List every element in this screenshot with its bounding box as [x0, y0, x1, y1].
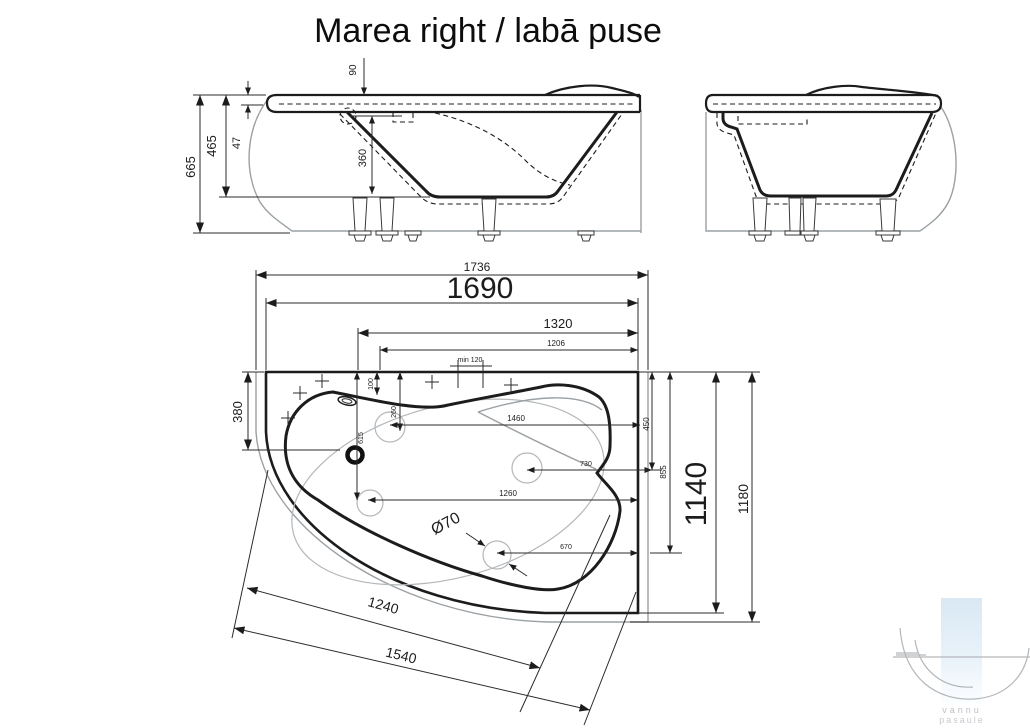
jet-circle-3	[357, 490, 383, 516]
side-skirt-outline	[249, 99, 641, 233]
side-deck-dashed-curve	[435, 113, 570, 185]
dimension-label: Ø70	[429, 509, 464, 538]
side-faucet-dashed	[393, 112, 413, 122]
dim-panel-1240: 1240	[232, 470, 636, 725]
extension-lines	[193, 95, 290, 233]
dimension-label: 47	[231, 137, 243, 149]
end-skirt-outline	[706, 107, 956, 231]
watermark-logo: vannu pasaule	[893, 598, 1030, 725]
dimension-label: 1240	[366, 593, 400, 617]
dimension-label: 855	[659, 465, 668, 479]
dimension-label: 1206	[547, 339, 565, 348]
dimension-label: 730	[580, 461, 592, 468]
plan-headrest-contour	[478, 398, 602, 469]
dim-plan-1206: 1206	[380, 339, 638, 370]
dimension-label: 380	[230, 401, 245, 423]
dimension-label: 1180	[735, 484, 751, 514]
dim-plan-450: 450	[638, 372, 760, 470]
side-interior-dashed	[340, 114, 622, 204]
dimension-line	[234, 628, 590, 710]
dim-drain-diameter: Ø70	[429, 509, 527, 576]
dim-plan-1460: 1460	[390, 414, 640, 425]
plan-basin-outline	[285, 385, 620, 590]
dimension-label: 260	[391, 406, 398, 418]
extension-lines	[638, 372, 760, 470]
dim-side-90: 90	[348, 58, 402, 116]
watermark-bar	[941, 598, 982, 704]
leader-arrow-2	[509, 564, 527, 576]
dimension-label: 615	[358, 432, 365, 444]
dimension-label: 360	[357, 149, 369, 167]
drain-hole-circle	[483, 541, 511, 569]
end-seat-dashed	[738, 116, 807, 124]
jet-circle-2	[512, 453, 542, 483]
dimension-label: 1260	[499, 489, 517, 498]
end-interior-dashed	[717, 113, 936, 204]
plan-view: 1736 1690 1320 1206 min 120 380	[230, 260, 760, 725]
dim-plan-730: 730	[527, 461, 652, 470]
bathtub-drawing: Marea right / labā puse 665 465 47	[0, 0, 1030, 728]
page-title: Marea right / labā puse	[314, 12, 662, 50]
dimension-label: 1460	[507, 414, 525, 423]
dim-panel-1540: 1540	[234, 628, 590, 710]
side-tub-interior	[347, 112, 617, 197]
dim-plan-100: 100	[368, 372, 377, 395]
dimension-label: 1690	[447, 272, 514, 305]
end-tub-interior	[723, 112, 932, 196]
leader-arrow-1	[466, 533, 485, 546]
dimension-label: 670	[560, 544, 572, 551]
faucet-inner	[342, 398, 353, 404]
end-view	[706, 86, 956, 241]
side-legs	[349, 198, 594, 241]
dimension-label: 665	[183, 156, 198, 178]
dimension-label: 100	[368, 378, 375, 390]
dim-plan-1320: 1320	[358, 316, 638, 370]
dimension-label: 1540	[384, 644, 418, 667]
dimension-label: 450	[642, 417, 651, 431]
dim-plan-1140: 1140	[638, 372, 724, 613]
dimension-label: 465	[204, 135, 219, 157]
dim-plan-670: 670	[497, 544, 638, 553]
dimension-label: 1140	[680, 462, 713, 527]
dim-plan-615: 615	[357, 372, 365, 500]
dim-plan-260: 260	[391, 372, 400, 431]
dimension-label: 90	[348, 64, 359, 76]
watermark-text-line2: pasaule	[939, 715, 985, 725]
side-view: 665 465 47 90 360	[183, 58, 641, 241]
technical-drawing-page: Marea right / labā puse 665 465 47	[0, 0, 1030, 728]
extension-lines	[450, 360, 492, 388]
overflow-ring	[348, 448, 363, 463]
dim-plan-855: 855	[650, 372, 682, 553]
dim-plan-1690: 1690	[266, 272, 638, 370]
dim-side-665: 665	[183, 95, 290, 233]
dimension-label: 1320	[544, 316, 573, 331]
extension-lines	[266, 298, 638, 370]
extension-lines	[232, 470, 636, 725]
dimension-label: min 120	[458, 357, 483, 364]
watermark-text-line1: vannu	[942, 705, 982, 715]
